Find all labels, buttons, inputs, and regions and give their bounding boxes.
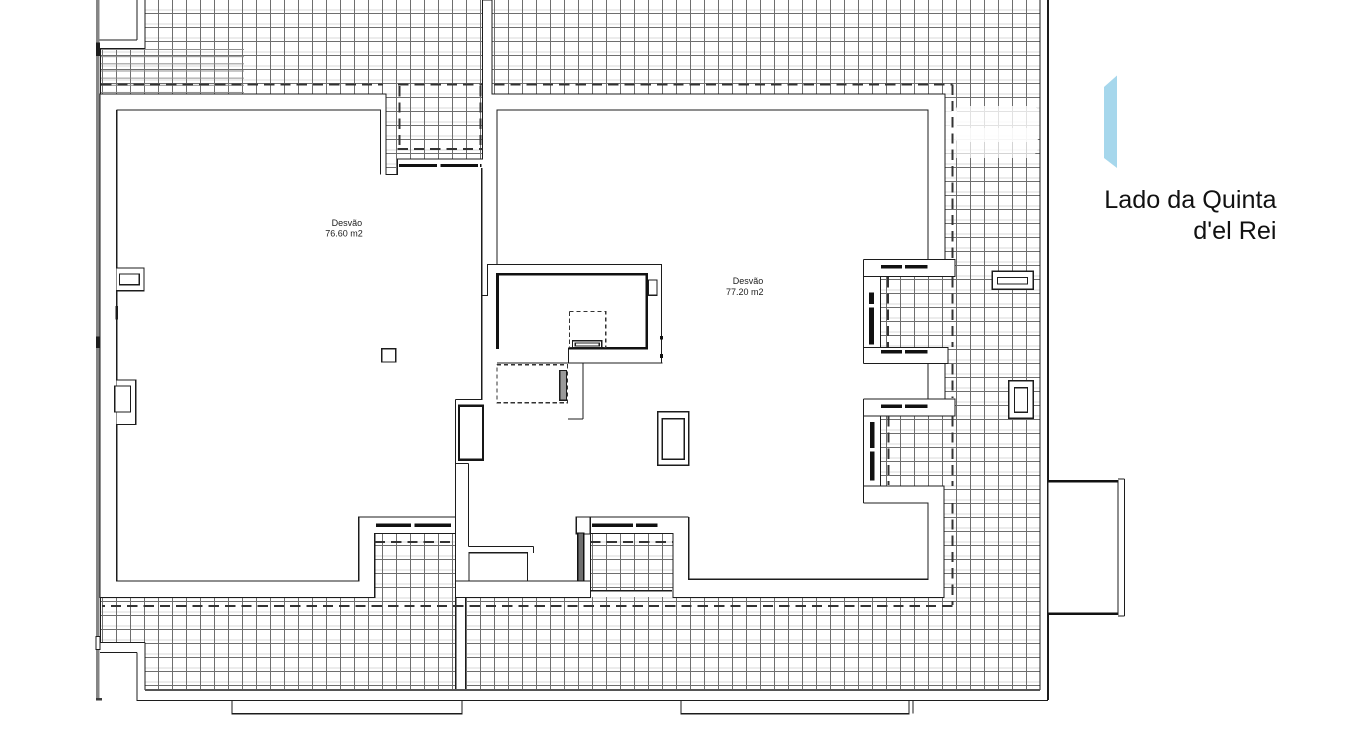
svg-text:77.20 m2: 77.20 m2: [726, 287, 764, 297]
svg-text:Desvão: Desvão: [332, 218, 363, 228]
svg-text:Desvão: Desvão: [733, 276, 764, 286]
svg-text:76.60 m2: 76.60 m2: [325, 228, 363, 238]
svg-text:Lado da Quinta: Lado da Quinta: [1104, 186, 1277, 214]
svg-text:d'el Rei: d'el Rei: [1193, 217, 1276, 245]
